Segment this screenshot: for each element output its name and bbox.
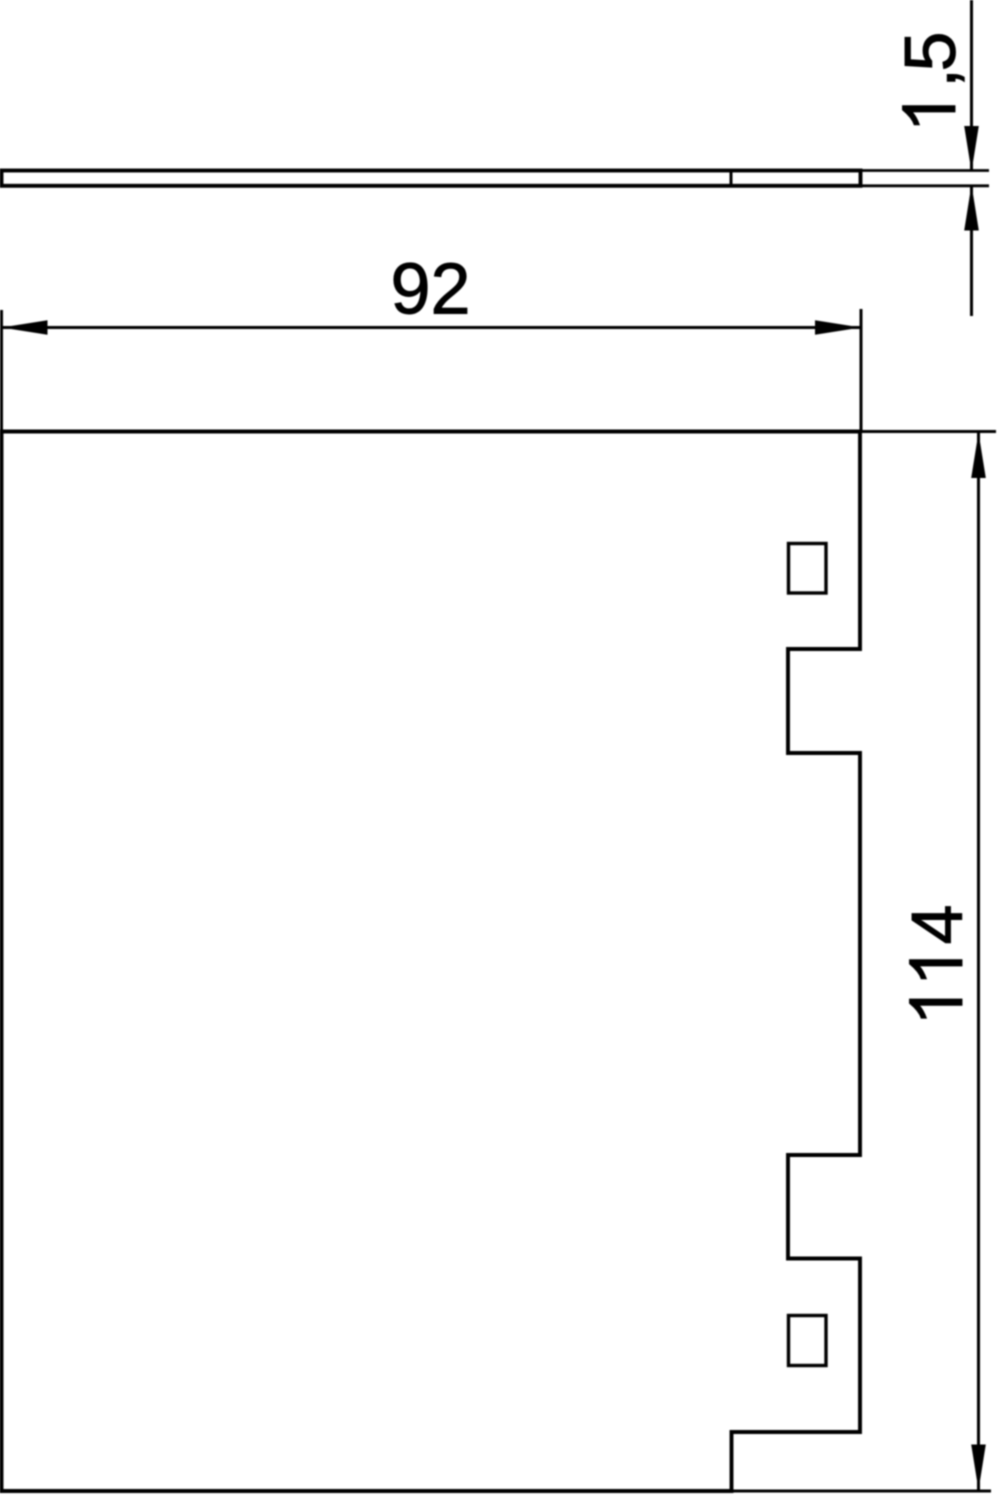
svg-text:5: 5 — [891, 31, 971, 71]
svg-text:4: 4 — [898, 904, 978, 944]
svg-text:92: 92 — [390, 250, 470, 330]
